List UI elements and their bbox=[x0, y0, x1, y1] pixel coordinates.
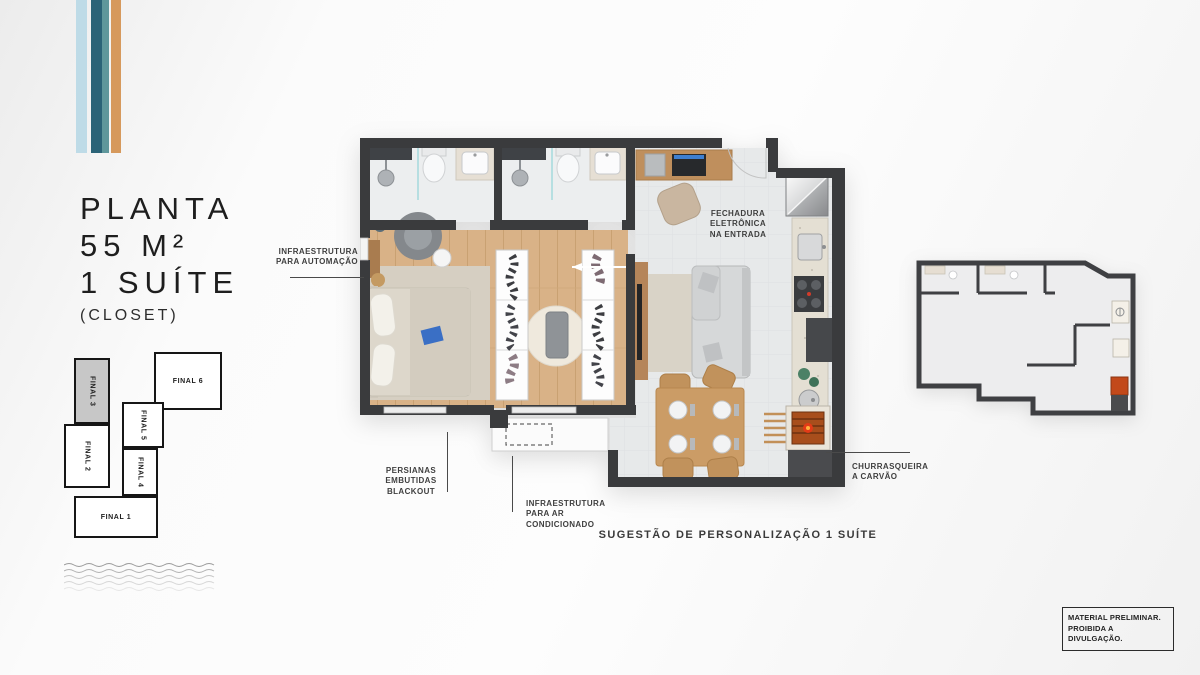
key-plan-unit-final-1: FINAL 1 bbox=[74, 496, 158, 538]
stripe-teal bbox=[102, 0, 109, 153]
unit-label: FINAL 2 bbox=[84, 441, 91, 472]
balcony-strip bbox=[492, 418, 608, 451]
title-line-suite: 1 SUÍTE bbox=[80, 264, 239, 301]
stripe-lightblue bbox=[76, 0, 87, 153]
unit-label: FINAL 4 bbox=[137, 457, 144, 488]
key-plan: FINAL 3 FINAL 6 FINAL 2 FINAL 5 FINAL 4 … bbox=[58, 352, 243, 544]
disclaimer-box: MATERIAL PRELIMINAR. PROIBIDA A DIVULGAÇ… bbox=[1062, 607, 1174, 651]
title-line-closet: (CLOSET) bbox=[80, 307, 239, 325]
annotation-electronic-lock: FECHADURA ELETRÔNICA NA ENTRADA bbox=[698, 209, 778, 240]
stripe-darkteal bbox=[91, 0, 102, 153]
annotation-charcoal-grill: CHURRASQUEIRA A CARVÃO bbox=[852, 462, 944, 483]
annotation-air-conditioning: INFRAESTRUTURA PARA AR CONDICIONADO bbox=[526, 499, 616, 530]
unit-label: FINAL 6 bbox=[173, 378, 204, 385]
unit-label: FINAL 1 bbox=[101, 514, 132, 521]
page-title: PLANTA 55 M² 1 SUÍTE (CLOSET) bbox=[80, 190, 239, 325]
annotation-blinds: PERSIANAS EMBUTIDAS BLACKOUT bbox=[382, 466, 440, 497]
oven-appliance bbox=[806, 318, 832, 362]
mini-plan-outline bbox=[919, 263, 1133, 413]
annotation-air-conditioning-leader bbox=[512, 456, 513, 512]
annotation-charcoal-grill-leader bbox=[826, 452, 910, 453]
key-plan-unit-final-5: FINAL 5 bbox=[122, 402, 164, 448]
key-plan-unit-final-2: FINAL 2 bbox=[64, 424, 110, 488]
stripe-gold bbox=[111, 0, 121, 153]
mini-floor-plan bbox=[915, 253, 1137, 421]
unit-label: FINAL 5 bbox=[140, 410, 147, 441]
main-floor-plan bbox=[360, 138, 845, 490]
annotation-automation-leader bbox=[290, 277, 364, 278]
brand-stripes bbox=[76, 0, 121, 153]
title-line-area: 55 M² bbox=[80, 227, 239, 264]
sink bbox=[798, 234, 822, 260]
title-line-planta: PLANTA bbox=[80, 190, 239, 227]
annotation-automation: INFRAESTRUTURA PARA AUTOMAÇÃO bbox=[272, 247, 358, 268]
annotation-blinds-leader bbox=[447, 432, 448, 492]
key-plan-unit-final-3: FINAL 3 bbox=[74, 358, 110, 424]
key-plan-unit-final-6: FINAL 6 bbox=[154, 352, 222, 410]
unit-label: FINAL 3 bbox=[89, 376, 96, 407]
key-plan-unit-final-4: FINAL 4 bbox=[122, 448, 158, 496]
wave-decoration bbox=[64, 562, 224, 592]
plan-caption: SUGESTÃO DE PERSONALIZAÇÃO 1 SUÍTE bbox=[538, 529, 938, 541]
